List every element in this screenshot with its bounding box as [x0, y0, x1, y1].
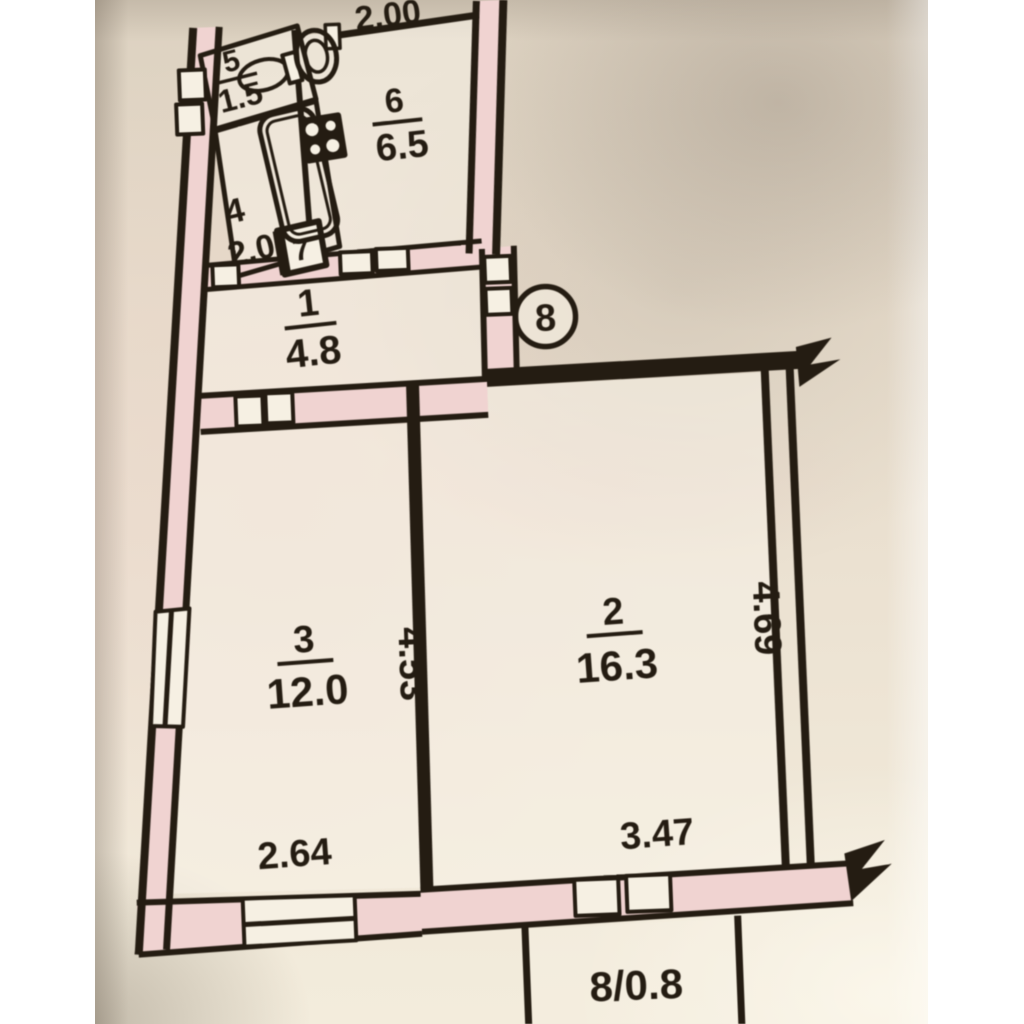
dim-room3-width: 2.64: [256, 831, 333, 878]
stove-icon: [299, 112, 348, 164]
kitchen-door-2: [376, 248, 409, 271]
room3-number: 3: [292, 618, 316, 661]
room2-floor: [413, 372, 786, 887]
room2-area: 16.3: [575, 639, 660, 692]
room2-window-2: [626, 874, 671, 912]
room1-number: 1: [295, 282, 321, 326]
room1-area: 4.8: [283, 328, 343, 378]
break-symbol-bottom-right: [844, 840, 893, 902]
left-wall-duct-1: [179, 69, 206, 100]
balcony-label: 8/0.8: [589, 960, 684, 1011]
room3-door-2: [265, 392, 293, 423]
room6-area: 6.5: [374, 123, 431, 170]
balcony-right-wall: [738, 916, 742, 1024]
floor-plan-drawing: 8 5 1.5 4 2.0. 6 6.5 7: [0, 0, 1024, 1024]
balcony-left-wall: [525, 928, 529, 1024]
room2-right-wall-outer: [790, 367, 811, 867]
room3-area: 12.0: [265, 665, 350, 718]
dim-room3-depth: 4.53: [389, 626, 434, 702]
dim-room2-width: 3.47: [619, 811, 696, 858]
room2-number: 2: [601, 590, 625, 633]
kitchen-door-1: [340, 251, 373, 274]
marker-circle-label: 8: [534, 297, 557, 340]
break-symbol-top-right: [796, 337, 842, 387]
left-wall-duct-2: [176, 104, 203, 135]
hall-right-vent-2: [485, 288, 512, 315]
dim-room2-depth: 4.69: [744, 581, 789, 657]
hall-right-vent-1: [484, 256, 511, 283]
marker-circle: 8: [514, 285, 576, 347]
room3-door-1: [235, 395, 263, 426]
room2-window-1: [574, 878, 619, 916]
photo-of-floor-plan: { "photo": { "plan": { "rooms": [ {"numb…: [0, 0, 1024, 1024]
